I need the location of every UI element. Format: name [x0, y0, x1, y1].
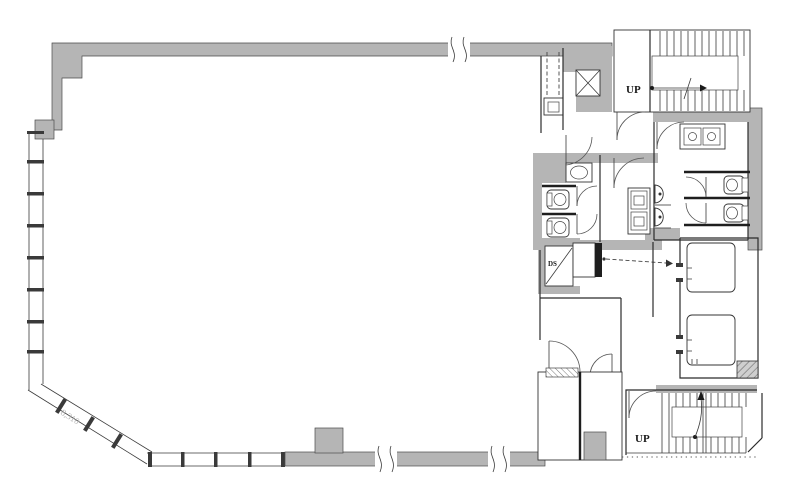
stair-south: UP: [622, 385, 762, 457]
wall-break-south-2-icon: [488, 446, 510, 472]
urinal-icon: [655, 208, 671, 228]
west-window-wall: [27, 131, 44, 390]
restroom-block-top-wall: [653, 112, 750, 122]
mullion-tick: [27, 256, 44, 260]
dimension-label: 8,310: [59, 407, 82, 426]
floor-plan-drawing: 8,310: [0, 0, 787, 494]
stall-door: [686, 177, 706, 197]
toilet-icon: [547, 218, 569, 237]
stair-north-up-label: UP: [626, 84, 641, 96]
elevator-bank: [676, 238, 758, 378]
wash-basin-icon: [566, 163, 592, 182]
wall-break-south-1-icon: [375, 446, 397, 472]
column: [35, 120, 54, 139]
mullion-tick: [27, 192, 44, 196]
east-wall-upper: [748, 108, 762, 250]
toilet-icon: [547, 190, 569, 209]
mullion-tick: [27, 350, 44, 354]
hatched-shaft-corner: [737, 361, 758, 378]
chamfer-window-wall: 8,310: [28, 384, 152, 464]
stall-door: [577, 214, 597, 234]
duct-space-label: DS: [548, 260, 557, 268]
hatched-wall: [546, 368, 578, 377]
stair-south-door: [629, 391, 656, 418]
mullion-tick: [214, 452, 218, 467]
shaft-block: [584, 432, 606, 460]
toilet-icon: [724, 176, 748, 194]
mullion-tick: [27, 160, 44, 164]
north-wall: [52, 43, 612, 130]
mullion-tick: [27, 288, 44, 292]
south-window-wall: [147, 452, 285, 467]
mullion-tick: [248, 452, 252, 467]
vanity-sinks-icon: [680, 124, 725, 149]
stair-south-up-label: UP: [635, 433, 650, 445]
hall-door: [549, 341, 580, 372]
south-pilaster: [315, 428, 343, 453]
stall-door: [577, 186, 597, 206]
floor-plan: 8,310: [0, 0, 787, 494]
restroom-vestibule: [614, 122, 654, 240]
cleaners-sink-icon: [628, 188, 650, 234]
mullion-tick: [181, 452, 185, 467]
elevator-car-icon: [687, 315, 735, 365]
stair-north-door: [617, 112, 645, 140]
toilet-icon: [724, 204, 748, 222]
restroom-east: [654, 122, 750, 240]
mullion-tick: [27, 224, 44, 228]
wall-break-north-icon: [448, 37, 470, 62]
stair-north: UP: [614, 30, 750, 140]
mullion-tick: [27, 320, 44, 324]
urinal-icon: [655, 185, 671, 205]
south-service-rooms: [538, 368, 622, 460]
stall-door: [686, 203, 706, 223]
elevator-car-icon: [687, 243, 735, 292]
route-arrow: [602, 257, 673, 267]
